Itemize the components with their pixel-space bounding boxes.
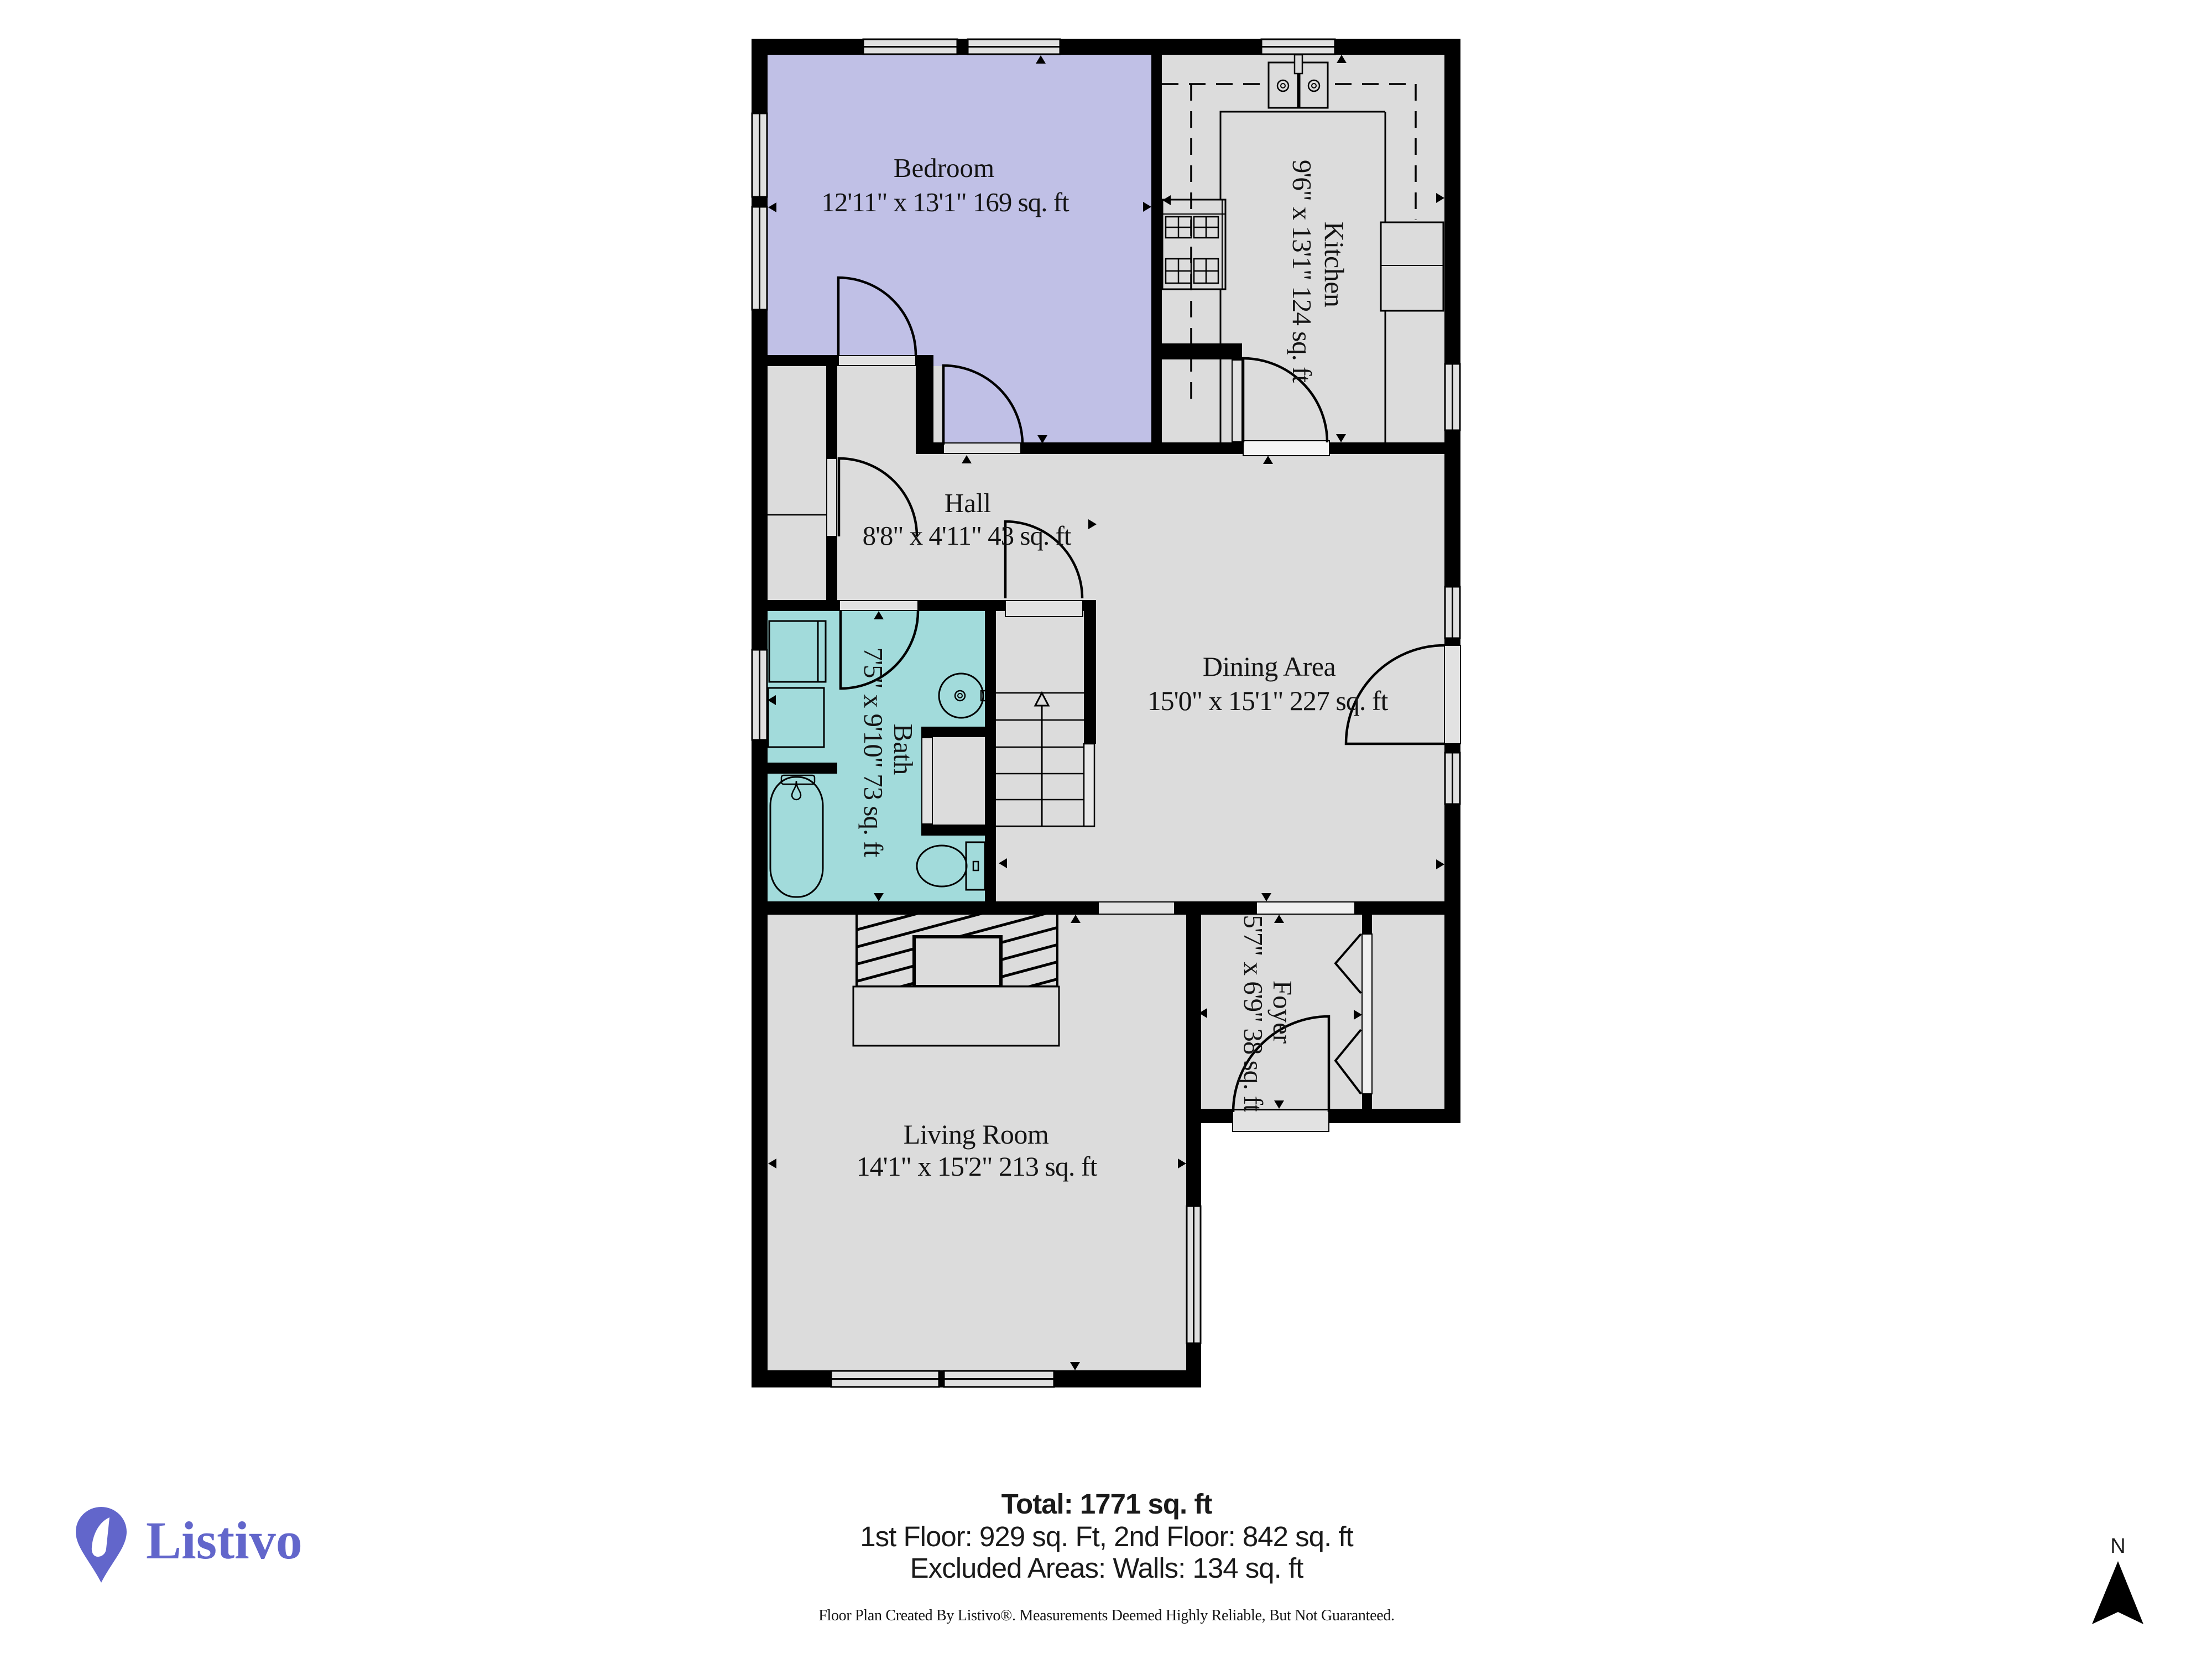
svg-text:5'7" x 6'9" 38 sq. ft: 5'7" x 6'9" 38 sq. ft [1238,915,1269,1112]
svg-text:Floor Plan Created By Listivo®: Floor Plan Created By Listivo®. Measurem… [818,1607,1395,1624]
svg-text:Excluded Areas: Walls: 134 sq.: Excluded Areas: Walls: 134 sq. ft [910,1552,1303,1584]
svg-text:Listivo: Listivo [146,1511,302,1570]
svg-text:Hall: Hall [945,488,991,518]
svg-text:N: N [2110,1535,2125,1558]
svg-text:9'6" x 13'1" 124 sq. ft: 9'6" x 13'1" 124 sq. ft [1287,160,1317,383]
svg-text:Total: 1771 sq. ft: Total: 1771 sq. ft [1001,1488,1213,1520]
svg-text:1st Floor: 929 sq. Ft, 2nd Flo: 1st Floor: 929 sq. Ft, 2nd Floor: 842 sq… [860,1521,1353,1552]
svg-text:8'8" x 4'11" 43 sq. ft: 8'8" x 4'11" 43 sq. ft [863,520,1072,551]
svg-text:Foyer: Foyer [1267,980,1298,1044]
svg-text:Bedroom: Bedroom [894,153,994,183]
svg-text:15'0" x 15'1" 227 sq. ft: 15'0" x 15'1" 227 sq. ft [1147,685,1389,716]
svg-text:7'5" x 9'10" 73 sq. ft: 7'5" x 9'10" 73 sq. ft [858,648,889,858]
svg-text:Kitchen: Kitchen [1319,222,1350,307]
svg-text:Bath: Bath [888,724,919,775]
svg-text:14'1" x 15'2" 213 sq. ft: 14'1" x 15'2" 213 sq. ft [857,1151,1098,1182]
svg-text:Living Room: Living Room [904,1119,1049,1150]
svg-text:Dining Area: Dining Area [1203,651,1336,682]
svg-text:12'11" x 13'1" 169 sq. ft: 12'11" x 13'1" 169 sq. ft [821,187,1070,217]
